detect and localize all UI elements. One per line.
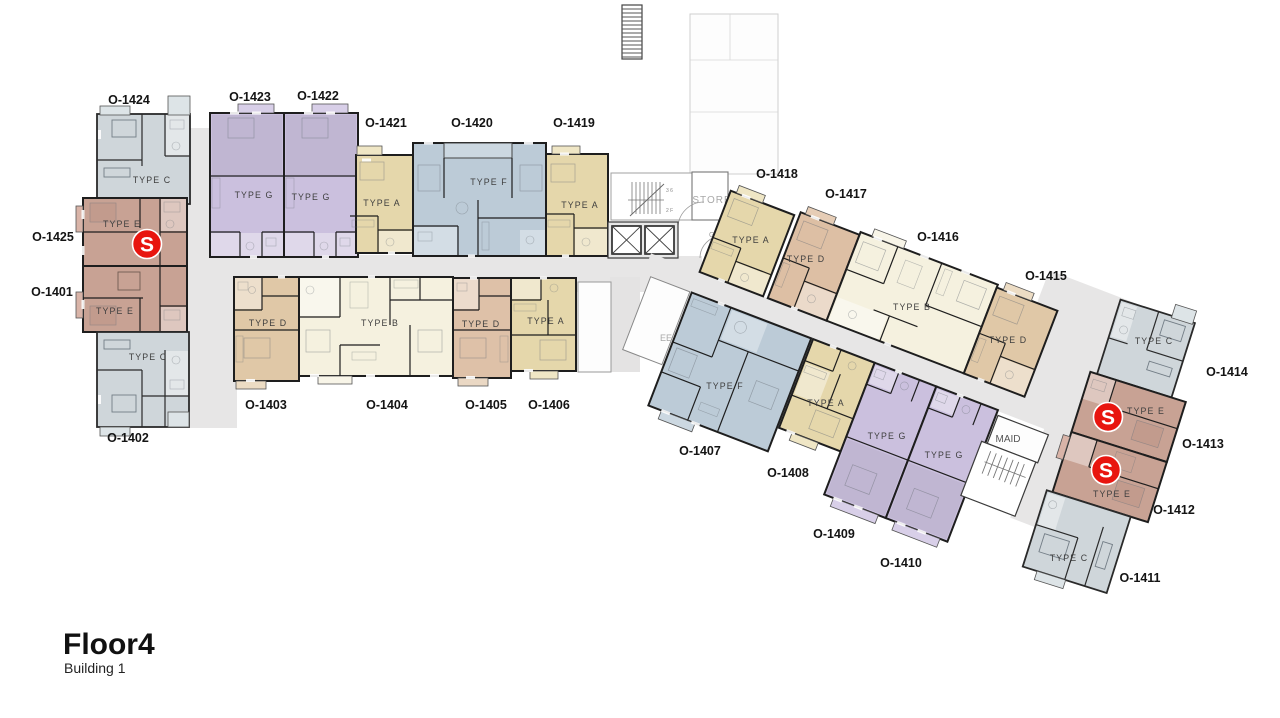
svg-text:MAID: MAID <box>996 434 1021 445</box>
svg-text:O-1406: O-1406 <box>528 398 570 412</box>
svg-text:TYPE C: TYPE C <box>1050 553 1088 563</box>
svg-text:O-1420: O-1420 <box>451 116 493 130</box>
svg-text:TYPE E: TYPE E <box>1127 406 1165 416</box>
svg-text:O-1417: O-1417 <box>825 187 867 201</box>
svg-text:O-1421: O-1421 <box>365 116 407 130</box>
svg-text:TYPE E: TYPE E <box>96 306 134 316</box>
svg-text:Floor4: Floor4 <box>63 628 155 661</box>
svg-text:O-1422: O-1422 <box>297 89 339 103</box>
svg-text:S: S <box>140 234 154 257</box>
svg-text:2 F: 2 F <box>666 208 673 214</box>
svg-text:TYPE D: TYPE D <box>787 254 825 264</box>
svg-text:Building 1: Building 1 <box>64 660 126 676</box>
svg-text:TYPE A: TYPE A <box>527 316 564 326</box>
svg-text:EE: EE <box>660 333 672 343</box>
svg-text:O-1404: O-1404 <box>366 398 408 412</box>
svg-text:O-1410: O-1410 <box>880 556 922 570</box>
svg-text:TYPE E: TYPE E <box>103 219 141 229</box>
svg-text:O-1419: O-1419 <box>553 116 595 130</box>
svg-text:TYPE A: TYPE A <box>732 235 769 245</box>
svg-text:S: S <box>1099 460 1113 483</box>
svg-text:O-1405: O-1405 <box>465 398 507 412</box>
svg-text:O-1415: O-1415 <box>1025 269 1067 283</box>
svg-text:TYPE E: TYPE E <box>1093 489 1131 499</box>
svg-text:O-1402: O-1402 <box>107 431 149 445</box>
svg-text:TYPE G: TYPE G <box>868 431 907 441</box>
svg-text:O-1424: O-1424 <box>108 93 150 107</box>
svg-text:O-1425: O-1425 <box>32 230 74 244</box>
svg-text:TYPE D: TYPE D <box>249 318 287 328</box>
svg-text:O-1414: O-1414 <box>1206 365 1248 379</box>
svg-text:O-1412: O-1412 <box>1153 503 1195 517</box>
svg-text:TYPE C: TYPE C <box>133 175 171 185</box>
svg-text:O-1401: O-1401 <box>31 285 73 299</box>
svg-text:TYPE D: TYPE D <box>462 319 500 329</box>
svg-text:TYPE F: TYPE F <box>470 177 507 187</box>
svg-text:S: S <box>1101 407 1115 430</box>
svg-text:TYPE A: TYPE A <box>807 398 844 408</box>
svg-text:O-1407: O-1407 <box>679 444 721 458</box>
svg-text:TYPE G: TYPE G <box>925 450 964 460</box>
svg-text:TYPE G: TYPE G <box>235 190 274 200</box>
svg-text:TYPE A: TYPE A <box>561 200 598 210</box>
svg-text:TYPE C: TYPE C <box>1135 336 1173 346</box>
svg-text:TYPE C: TYPE C <box>129 352 167 362</box>
svg-text:TYPE B: TYPE B <box>361 318 399 328</box>
svg-text:O-1413: O-1413 <box>1182 437 1224 451</box>
svg-text:O-1408: O-1408 <box>767 466 809 480</box>
svg-text:TYPE B: TYPE B <box>893 302 931 312</box>
svg-text:TYPE D: TYPE D <box>989 335 1027 345</box>
svg-text:O-1403: O-1403 <box>245 398 287 412</box>
svg-text:TYPE F: TYPE F <box>706 381 743 391</box>
svg-text:O-1423: O-1423 <box>229 90 271 104</box>
svg-text:O-1416: O-1416 <box>917 230 959 244</box>
svg-text:O-1418: O-1418 <box>756 167 798 181</box>
svg-text:O-1409: O-1409 <box>813 527 855 541</box>
svg-text:3 6: 3 6 <box>666 188 673 194</box>
svg-text:TYPE A: TYPE A <box>363 198 400 208</box>
svg-text:TYPE G: TYPE G <box>292 192 331 202</box>
svg-text:O-1411: O-1411 <box>1119 571 1160 585</box>
